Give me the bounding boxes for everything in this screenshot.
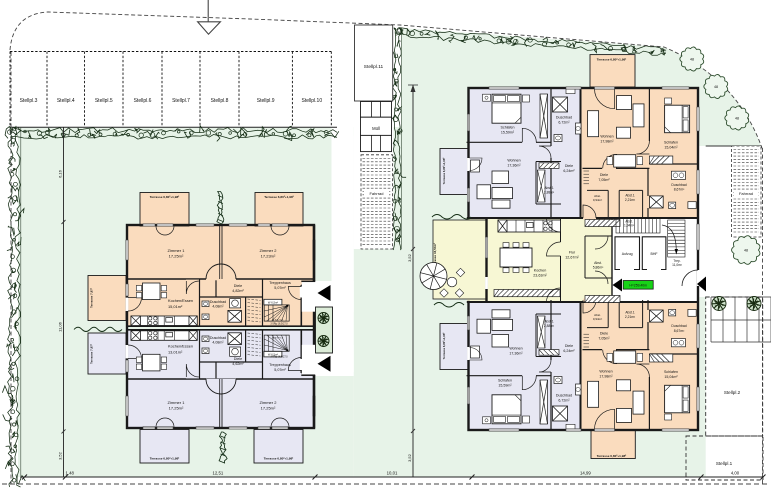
svg-text:Fahrrad: Fahrrad	[739, 191, 753, 196]
svg-text:2,88m²: 2,88m²	[544, 191, 555, 195]
svg-text:Diele: Diele	[600, 173, 608, 177]
svg-text:7,05m²: 7,05m²	[598, 337, 610, 341]
svg-text:12,51: 12,51	[213, 471, 224, 476]
svg-text:Stellpl.1: Stellpl.1	[716, 461, 733, 466]
svg-text:Terrasse 7,87²: Terrasse 7,87²	[90, 344, 94, 364]
svg-text:Fahrrad: Fahrrad	[369, 191, 383, 196]
svg-text:Terrasse 6,80²+1,98²: Terrasse 6,80²+1,98²	[264, 195, 293, 199]
svg-text:14,99: 14,99	[580, 471, 591, 476]
svg-text:H=259,40m: H=259,40m	[629, 284, 647, 288]
svg-text:Zimmer 1: Zimmer 1	[168, 400, 186, 405]
svg-text:Abst.1: Abst.1	[625, 194, 635, 198]
svg-text:15,04m²: 15,04m²	[664, 146, 678, 150]
svg-text:Abst.: Abst.	[594, 261, 602, 265]
svg-text:Abst.1: Abst.1	[544, 320, 554, 324]
svg-text:Schlafen: Schlafen	[498, 379, 512, 383]
svg-text:Stellpl.7: Stellpl.7	[172, 98, 190, 104]
svg-text:13,01m²: 13,01m²	[168, 350, 183, 355]
svg-text:11,0m²: 11,0m²	[672, 263, 682, 267]
svg-text:Schlafen: Schlafen	[664, 141, 678, 145]
svg-text:1,48: 1,48	[66, 471, 75, 476]
svg-text:4,82m²: 4,82m²	[232, 289, 244, 293]
svg-text:Kochen: Kochen	[534, 269, 547, 273]
svg-text:17,98m²: 17,98m²	[599, 375, 613, 379]
svg-text:4,00: 4,00	[731, 471, 740, 476]
svg-text:Terrasse 6,80²+1,98²: Terrasse 6,80²+1,98²	[264, 457, 293, 461]
svg-text:Müll: Müll	[372, 126, 380, 131]
svg-text:Stellpl.3: Stellpl.3	[20, 98, 38, 104]
svg-text:Diele: Diele	[234, 284, 242, 288]
svg-text:Terrasse 6,80²+1,98²: Terrasse 6,80²+1,98²	[150, 457, 179, 461]
svg-text:3,52: 3,52	[58, 451, 63, 460]
svg-text:23,63m²: 23,63m²	[533, 273, 547, 277]
svg-text:2,21m²: 2,21m²	[625, 315, 636, 319]
svg-text:3·5Rg·18,5/27,0: 3·5Rg·18,5/27,0	[270, 323, 288, 326]
svg-text:Zimmer 2: Zimmer 2	[260, 400, 278, 405]
svg-text:4,08m²: 4,08m²	[212, 341, 224, 345]
svg-text:0,94m²: 0,94m²	[593, 317, 602, 321]
svg-text:6,24m²: 6,24m²	[563, 169, 575, 173]
svg-text:17,25m²: 17,25m²	[261, 405, 276, 410]
svg-text:Flur: Flur	[569, 251, 576, 255]
svg-text:5,07m²: 5,07m²	[274, 286, 286, 290]
svg-text:Duschbad: Duschbad	[671, 324, 686, 328]
svg-text:17,25m²: 17,25m²	[169, 405, 184, 410]
svg-text:2,88m²: 2,88m²	[544, 324, 555, 328]
svg-text:12,67m²: 12,67m²	[565, 255, 579, 259]
svg-text:Duschbad: Duschbad	[556, 394, 572, 398]
svg-text:Terrasse 6,80²+1,98²: Terrasse 6,80²+1,98²	[442, 333, 446, 360]
svg-text:17,98m²: 17,98m²	[600, 140, 614, 144]
svg-text:Diele: Diele	[565, 344, 573, 348]
svg-text:4,08m²: 4,08m²	[212, 305, 224, 309]
svg-text:5,07m²: 5,07m²	[274, 368, 286, 372]
svg-text:5,86m²: 5,86m²	[593, 265, 604, 269]
svg-text:Zimmer 2: Zimmer 2	[260, 248, 278, 253]
svg-text:Abst.1: Abst.1	[544, 186, 554, 190]
svg-text:Kochen/Essen: Kochen/Essen	[168, 298, 193, 303]
svg-text:Stellpl.2: Stellpl.2	[724, 390, 741, 395]
svg-text:Wohnen: Wohnen	[509, 347, 522, 351]
svg-text:Stellpl.10: Stellpl.10	[302, 98, 323, 104]
svg-text:Stellpl.9: Stellpl.9	[257, 98, 275, 104]
svg-text:17,25m²: 17,25m²	[169, 253, 184, 258]
svg-text:Duschbad: Duschbad	[210, 300, 226, 304]
svg-text:6,72m²: 6,72m²	[558, 399, 570, 403]
svg-text:Terrasse 6,80²+1,98²: Terrasse 6,80²+1,98²	[150, 195, 179, 199]
svg-text:Kochen/Essen: Kochen/Essen	[168, 344, 193, 349]
svg-text:W 6,5m²: W 6,5m²	[268, 301, 278, 305]
svg-text:Zimmer 1: Zimmer 1	[168, 248, 186, 253]
svg-text:Stellpl.11: Stellpl.11	[364, 64, 384, 70]
svg-text:Terrasse 7,87²: Terrasse 7,87²	[90, 288, 94, 308]
svg-text:BHF: BHF	[651, 252, 658, 256]
svg-text:Wohnen: Wohnen	[507, 158, 520, 162]
svg-text:6,16: 6,16	[58, 169, 63, 178]
svg-text:Duschbad: Duschbad	[671, 183, 686, 187]
svg-text:2,21m²: 2,21m²	[625, 198, 636, 202]
svg-text:Stellpl.6: Stellpl.6	[134, 98, 152, 104]
svg-text:Diele: Diele	[234, 357, 242, 361]
svg-text:Aufzug: Aufzug	[622, 252, 633, 256]
svg-text:15,59m²: 15,59m²	[501, 131, 515, 135]
svg-text:Schlafen: Schlafen	[501, 126, 515, 130]
svg-text:10 9 8 7 6 5: 10 9 8 7 6 5	[272, 338, 284, 340]
svg-text:48: 48	[714, 85, 718, 89]
svg-text:6,72m²: 6,72m²	[558, 120, 570, 124]
svg-text:8,67m²: 8,67m²	[674, 187, 685, 191]
svg-text:15,04m²: 15,04m²	[664, 375, 678, 379]
svg-text:48: 48	[690, 58, 694, 62]
svg-text:1,94m²: 1,94m²	[624, 224, 634, 228]
svg-text:3,52: 3,52	[407, 253, 412, 262]
svg-text:Terrasse 6,80²+1,98²: Terrasse 6,80²+1,98²	[442, 158, 446, 185]
svg-text:3·5Rg·18,5/27,0: 3·5Rg·18,5/27,0	[270, 356, 288, 359]
svg-text:Stellpl.4: Stellpl.4	[57, 98, 75, 104]
svg-text:Duschbad: Duschbad	[556, 115, 572, 119]
svg-text:Stellpl.5: Stellpl.5	[95, 98, 113, 104]
svg-text:17,23m²: 17,23m²	[261, 253, 276, 258]
svg-text:Wohnen: Wohnen	[600, 135, 613, 139]
svg-text:7,05m²: 7,05m²	[598, 178, 610, 182]
svg-text:Schlafen: Schlafen	[664, 370, 678, 374]
svg-text:0,94m²: 0,94m²	[593, 198, 602, 202]
svg-text:4,62m²: 4,62m²	[232, 362, 244, 366]
svg-text:48: 48	[744, 249, 748, 253]
svg-text:48: 48	[735, 117, 739, 121]
svg-text:Duschbad: Duschbad	[210, 336, 226, 340]
svg-text:Diele: Diele	[600, 332, 608, 336]
svg-text:Terrasse 6,80²+1,98²: Terrasse 6,80²+1,98²	[597, 58, 626, 62]
svg-text:3,52: 3,52	[407, 453, 412, 462]
svg-text:8,67m²: 8,67m²	[674, 329, 685, 333]
svg-text:Treppenhaus: Treppenhaus	[269, 363, 291, 367]
svg-text:15,01m²: 15,01m²	[168, 304, 183, 309]
svg-text:11,06: 11,06	[58, 321, 63, 331]
svg-text:Treppenhaus: Treppenhaus	[269, 281, 291, 285]
svg-text:17,36m²: 17,36m²	[509, 352, 523, 356]
svg-text:Stellpl.8: Stellpl.8	[211, 98, 229, 104]
svg-text:Terrasse 6,80²+1,98²: Terrasse 6,80²+1,98²	[597, 454, 626, 458]
svg-text:10,01: 10,01	[387, 471, 398, 476]
svg-text:15,59m²: 15,59m²	[498, 384, 512, 388]
svg-text:17,36m²: 17,36m²	[507, 163, 521, 167]
svg-text:Diele: Diele	[565, 164, 573, 168]
svg-text:Abst.1: Abst.1	[625, 311, 635, 315]
svg-text:Wohnen: Wohnen	[599, 370, 612, 374]
svg-text:6,24m²: 6,24m²	[563, 349, 575, 353]
svg-text:10 9 8 7 6 5: 10 9 8 7 6 5	[272, 320, 284, 322]
